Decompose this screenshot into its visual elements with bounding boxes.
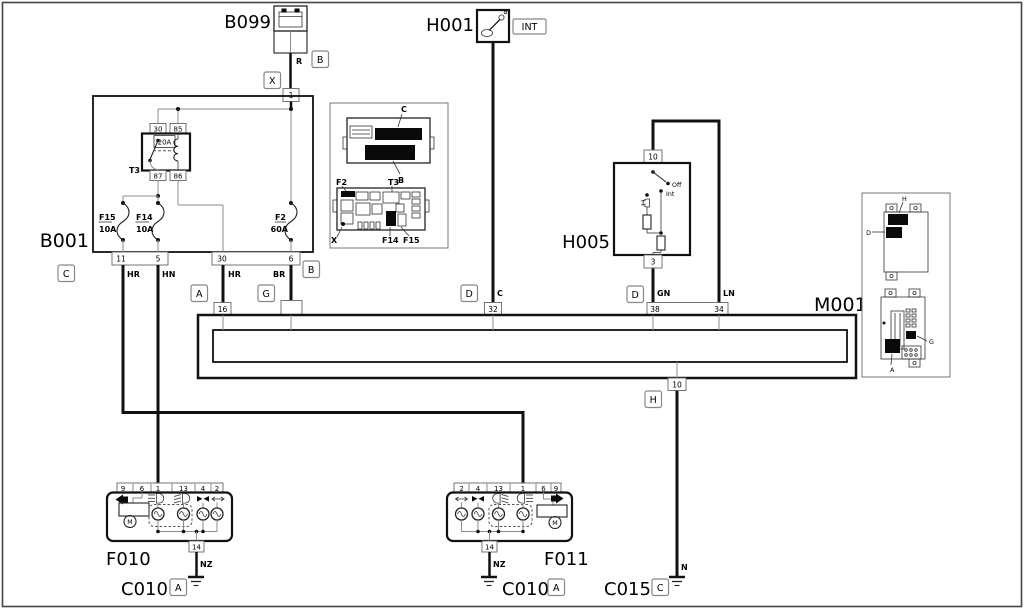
wire-code-c: C xyxy=(497,289,503,298)
ground-icon-c015 xyxy=(669,577,685,586)
wiring-diagram-page: B099 R B X 1 H001 INT C xyxy=(0,0,1024,609)
inset-fusebox-detail: C B F2 xyxy=(330,103,448,248)
svg-text:F15: F15 xyxy=(403,236,420,245)
svg-text:16: 16 xyxy=(218,305,228,314)
wire-code-gn: GN xyxy=(657,289,670,298)
m001-body-computer: M001 A G D 16 32 38 34 10 H xyxy=(191,285,867,408)
svg-text:H: H xyxy=(650,395,657,406)
svg-text:10A: 10A xyxy=(99,225,117,234)
h005-switch: H005 10 3 Off Int D GN LN xyxy=(562,150,735,303)
svg-text:30: 30 xyxy=(154,126,163,134)
m001-label: M001 xyxy=(814,294,867,316)
bulb-icons xyxy=(456,508,530,520)
connector-a-block xyxy=(885,339,900,353)
fuse-f15: F15 10A xyxy=(99,201,130,252)
svg-text:F2: F2 xyxy=(336,178,347,187)
svg-text:C: C xyxy=(401,105,407,114)
bulb-icons xyxy=(152,508,223,520)
f011-right-headlamp: 2 4 13 1 6 9 xyxy=(447,483,589,600)
svg-text:Int: Int xyxy=(666,191,675,198)
svg-text:B: B xyxy=(317,55,324,66)
connector-d-block xyxy=(886,227,902,238)
svg-text:D: D xyxy=(866,230,871,237)
c015-ground: N C015 C xyxy=(604,563,688,600)
connector-c-block xyxy=(375,128,422,140)
h001-label: H001 xyxy=(426,15,474,36)
motor-m: M xyxy=(127,519,132,526)
svg-text:87: 87 xyxy=(154,173,163,181)
svg-text:C: C xyxy=(63,269,70,280)
svg-text:85: 85 xyxy=(174,126,183,134)
svg-text:C: C xyxy=(657,583,664,594)
connector-g-block xyxy=(906,331,916,339)
svg-text:INT: INT xyxy=(522,22,538,33)
wire-code-ln: LN xyxy=(723,289,735,298)
high-beam-icon xyxy=(517,493,533,503)
wire-code-r: R xyxy=(296,57,302,66)
dual-filament-outline xyxy=(489,505,532,527)
svg-text:Off: Off xyxy=(672,182,682,189)
motor-m: M xyxy=(552,520,557,527)
svg-text:F2: F2 xyxy=(275,213,286,222)
svg-text:A: A xyxy=(553,583,560,594)
side-marker-icon xyxy=(212,497,224,501)
svg-text:D: D xyxy=(466,289,473,300)
svg-text:10: 10 xyxy=(648,153,658,162)
svg-text:D: D xyxy=(632,290,639,301)
svg-text:6: 6 xyxy=(289,255,294,264)
f011-label: F011 xyxy=(544,549,589,570)
svg-text:5: 5 xyxy=(156,255,161,264)
svg-text:F14: F14 xyxy=(136,213,153,222)
fuse-f2: F2 60A xyxy=(271,201,297,252)
f010-label: F010 xyxy=(106,549,151,570)
pin-g-box xyxy=(281,301,302,316)
svg-text:11: 11 xyxy=(116,255,126,264)
svg-text:14: 14 xyxy=(485,544,494,552)
wire-code-n: N xyxy=(681,563,688,572)
svg-text:T3: T3 xyxy=(388,178,399,187)
svg-text:A: A xyxy=(175,583,182,594)
b099-battery: B099 R B X 1 xyxy=(224,6,328,102)
svg-text:A: A xyxy=(196,289,203,300)
position-lamp-icon xyxy=(472,496,484,502)
c010-left-label: C010 xyxy=(121,579,168,600)
wire-code-hn: HN xyxy=(162,270,175,279)
high-beam-icon xyxy=(148,493,164,503)
inset-m001-detail: H D G A xyxy=(862,193,950,377)
x-terminal xyxy=(341,222,345,226)
wiring-diagram: B099 R B X 1 H001 INT C xyxy=(0,0,1024,609)
svg-text:14: 14 xyxy=(192,544,201,552)
fuse-f2-slot xyxy=(341,191,355,197)
wire-code-nz-left: NZ xyxy=(200,560,213,569)
svg-text:32: 32 xyxy=(488,305,498,314)
svg-text:B: B xyxy=(308,265,315,276)
svg-text:10: 10 xyxy=(672,381,682,390)
svg-text:60A: 60A xyxy=(271,225,289,234)
wire-code-hr2: HR xyxy=(228,270,241,279)
svg-text:10A: 10A xyxy=(136,225,154,234)
svg-text:86: 86 xyxy=(174,173,183,181)
low-beam-icon xyxy=(493,493,509,503)
svg-text:38: 38 xyxy=(650,305,660,314)
wire-code-hr1: HR xyxy=(127,270,140,279)
fuse-f14-slot xyxy=(386,211,396,226)
fuse-f14: F14 10A xyxy=(136,201,165,252)
c015-label: C015 xyxy=(604,579,651,600)
svg-text:F15: F15 xyxy=(99,213,116,222)
svg-text:G: G xyxy=(263,289,270,300)
c010-right-label: C010 xyxy=(502,579,549,600)
ground-icon-c010-left xyxy=(188,577,204,586)
relay-id: T3 xyxy=(129,166,140,175)
relay-t3: 30 85 87 86 T3 20A xyxy=(129,124,190,181)
svg-text:G: G xyxy=(929,339,934,346)
h005-outline xyxy=(614,163,690,255)
connector-h-block xyxy=(888,214,908,225)
battery-icon xyxy=(279,9,302,28)
connector-b-block xyxy=(365,145,415,160)
svg-text:30: 30 xyxy=(217,255,227,264)
position-lamp-icon xyxy=(197,496,209,502)
b001-label: B001 xyxy=(40,230,89,252)
svg-text:X: X xyxy=(331,236,338,245)
ground-icon-c010-right xyxy=(481,577,497,586)
h005-label: H005 xyxy=(562,232,610,253)
svg-text:X: X xyxy=(269,76,276,87)
svg-text:34: 34 xyxy=(714,305,724,314)
wire-code-br: BR xyxy=(273,270,285,279)
m001-outline xyxy=(198,315,856,378)
f010-left-headlamp: 9 6 1 13 4 2 M xyxy=(106,483,232,600)
wire-code-nz-right: NZ xyxy=(493,560,506,569)
low-beam-icon xyxy=(174,493,190,503)
b099-label: B099 xyxy=(224,12,271,33)
svg-text:F14: F14 xyxy=(382,236,399,245)
side-marker-icon xyxy=(456,497,468,501)
b001-fusebox: B001 30 85 87 86 T3 20A xyxy=(40,96,320,282)
svg-text:3: 3 xyxy=(651,258,656,267)
svg-text:20A: 20A xyxy=(158,139,172,147)
svg-text:A: A xyxy=(890,367,895,374)
